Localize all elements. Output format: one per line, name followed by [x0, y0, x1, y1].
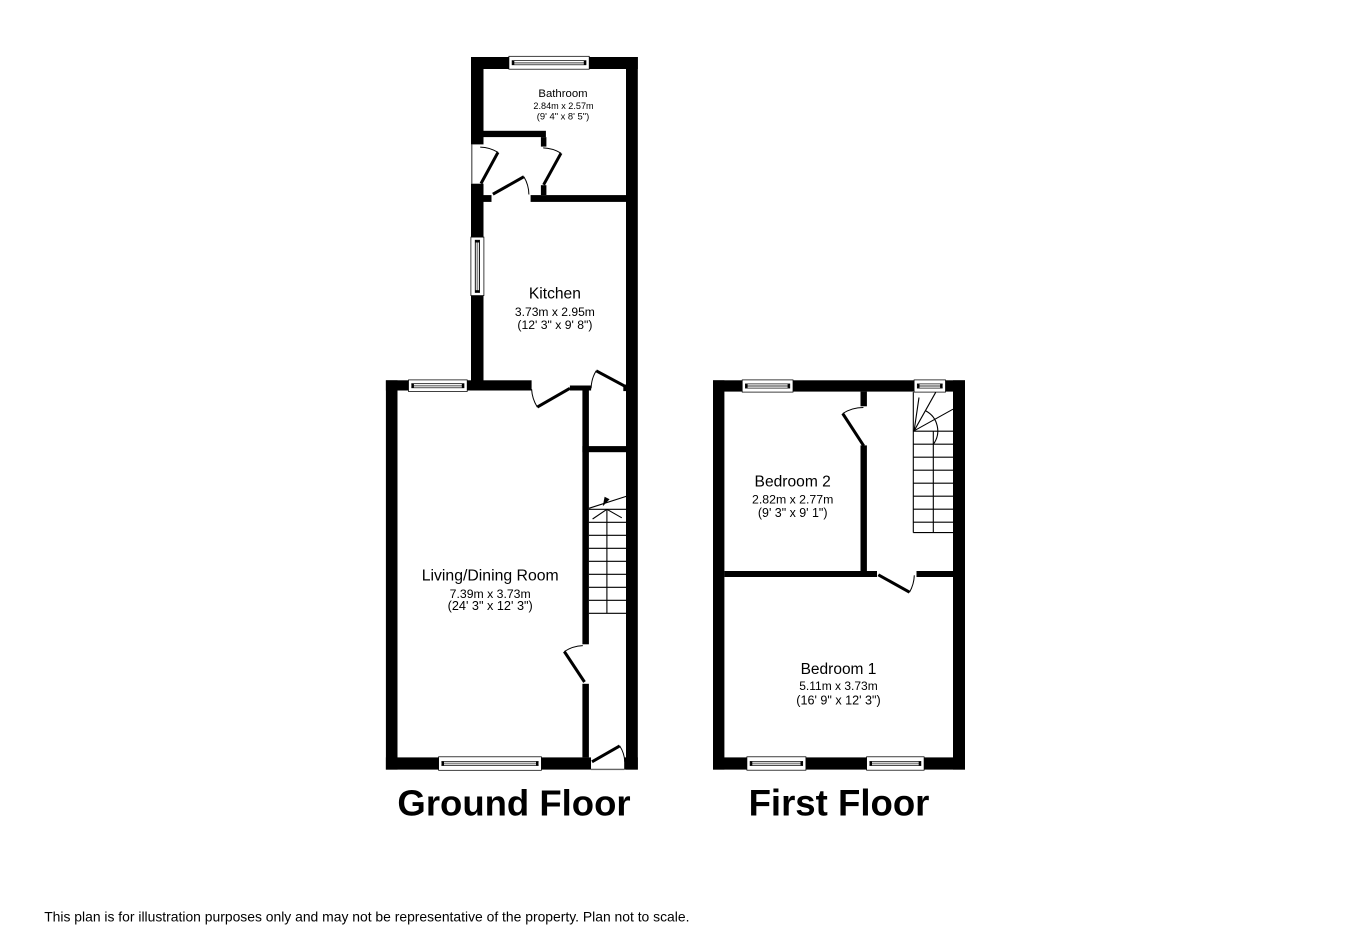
svg-text:Bathroom: Bathroom: [538, 88, 587, 100]
svg-text:Bedroom 1: Bedroom 1: [801, 661, 877, 678]
svg-text:First Floor: First Floor: [749, 783, 930, 824]
svg-text:5.11m x 3.73m: 5.11m x 3.73m: [799, 679, 877, 693]
svg-text:(16' 9" x 12' 3"): (16' 9" x 12' 3"): [796, 693, 880, 707]
svg-text:This plan is for illustration: This plan is for illustration purposes o…: [44, 909, 689, 925]
svg-text:(9' 4" x 8' 5"): (9' 4" x 8' 5"): [537, 110, 589, 121]
svg-text:Kitchen: Kitchen: [529, 286, 581, 303]
svg-text:Bedroom 2: Bedroom 2: [755, 474, 831, 491]
svg-text:Ground Floor: Ground Floor: [397, 783, 630, 824]
svg-text:2.82m x 2.77m: 2.82m x 2.77m: [752, 493, 833, 507]
svg-text:(9' 3" x 9' 1"): (9' 3" x 9' 1"): [758, 506, 828, 520]
svg-text:(24' 3" x 12' 3"): (24' 3" x 12' 3"): [448, 599, 533, 613]
svg-text:Living/Dining Room: Living/Dining Room: [422, 568, 559, 585]
svg-text:(12' 3" x 9' 8"): (12' 3" x 9' 8"): [517, 318, 592, 332]
